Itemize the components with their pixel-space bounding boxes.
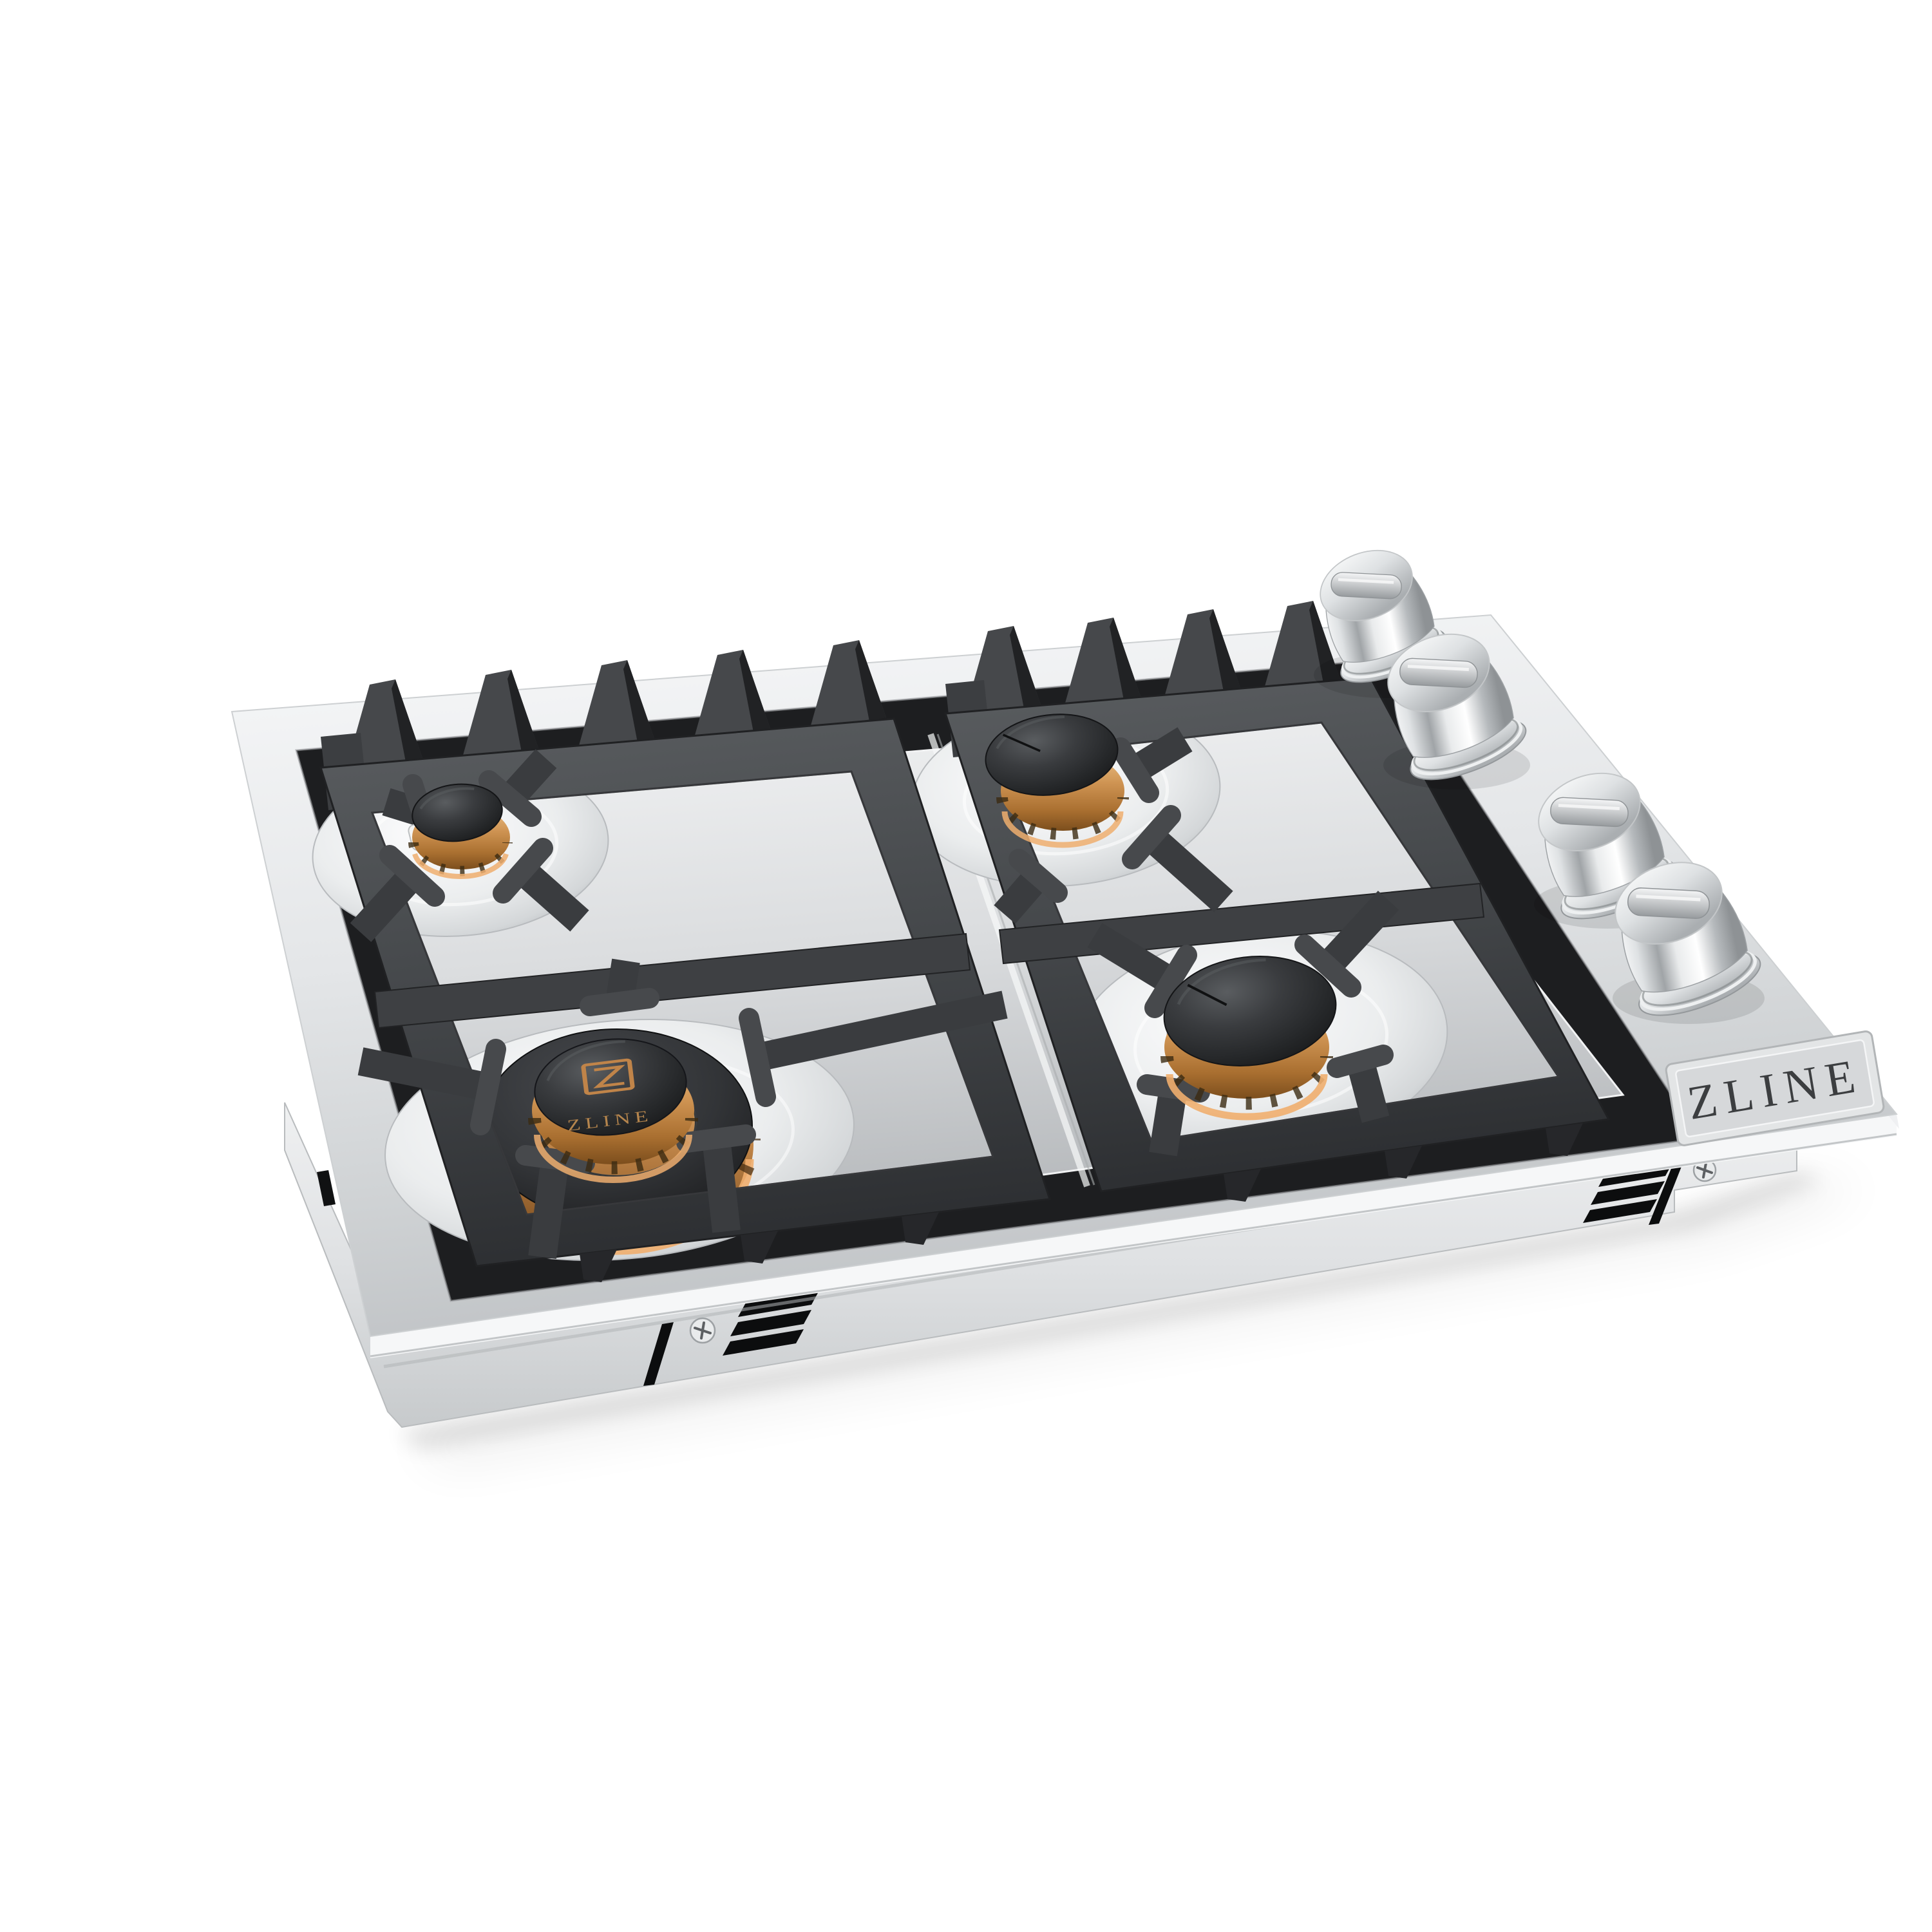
knob-grip	[1550, 797, 1629, 827]
screw-left	[690, 1318, 715, 1343]
knob-grip	[1627, 887, 1710, 919]
knob-grip	[1399, 658, 1478, 688]
product-photo-page: ZLINE	[0, 0, 1932, 1932]
gas-cooktop-product-photo: ZLINE	[0, 0, 1932, 1932]
knob-grip	[1331, 572, 1402, 600]
